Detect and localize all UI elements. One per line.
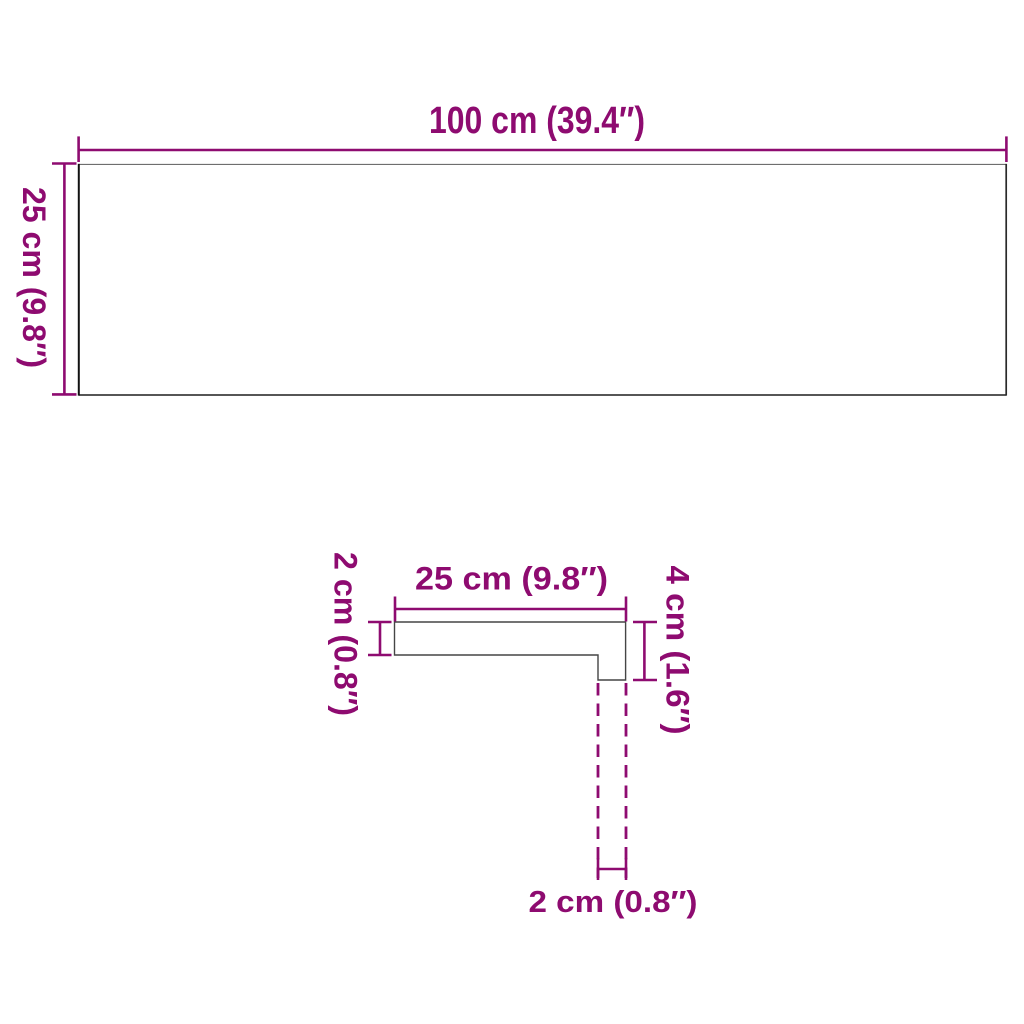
svg-text:100 cm (39.4″): 100 cm (39.4″) [429,100,645,142]
svg-text:25 cm (9.8″): 25 cm (9.8″) [415,561,608,597]
svg-text:2 cm (0.8″): 2 cm (0.8″) [328,552,364,716]
svg-text:2 cm (0.8″): 2 cm (0.8″) [529,884,698,919]
svg-text:4 cm (1.6″): 4 cm (1.6″) [660,566,696,735]
svg-text:25 cm (9.8″): 25 cm (9.8″) [16,187,52,368]
